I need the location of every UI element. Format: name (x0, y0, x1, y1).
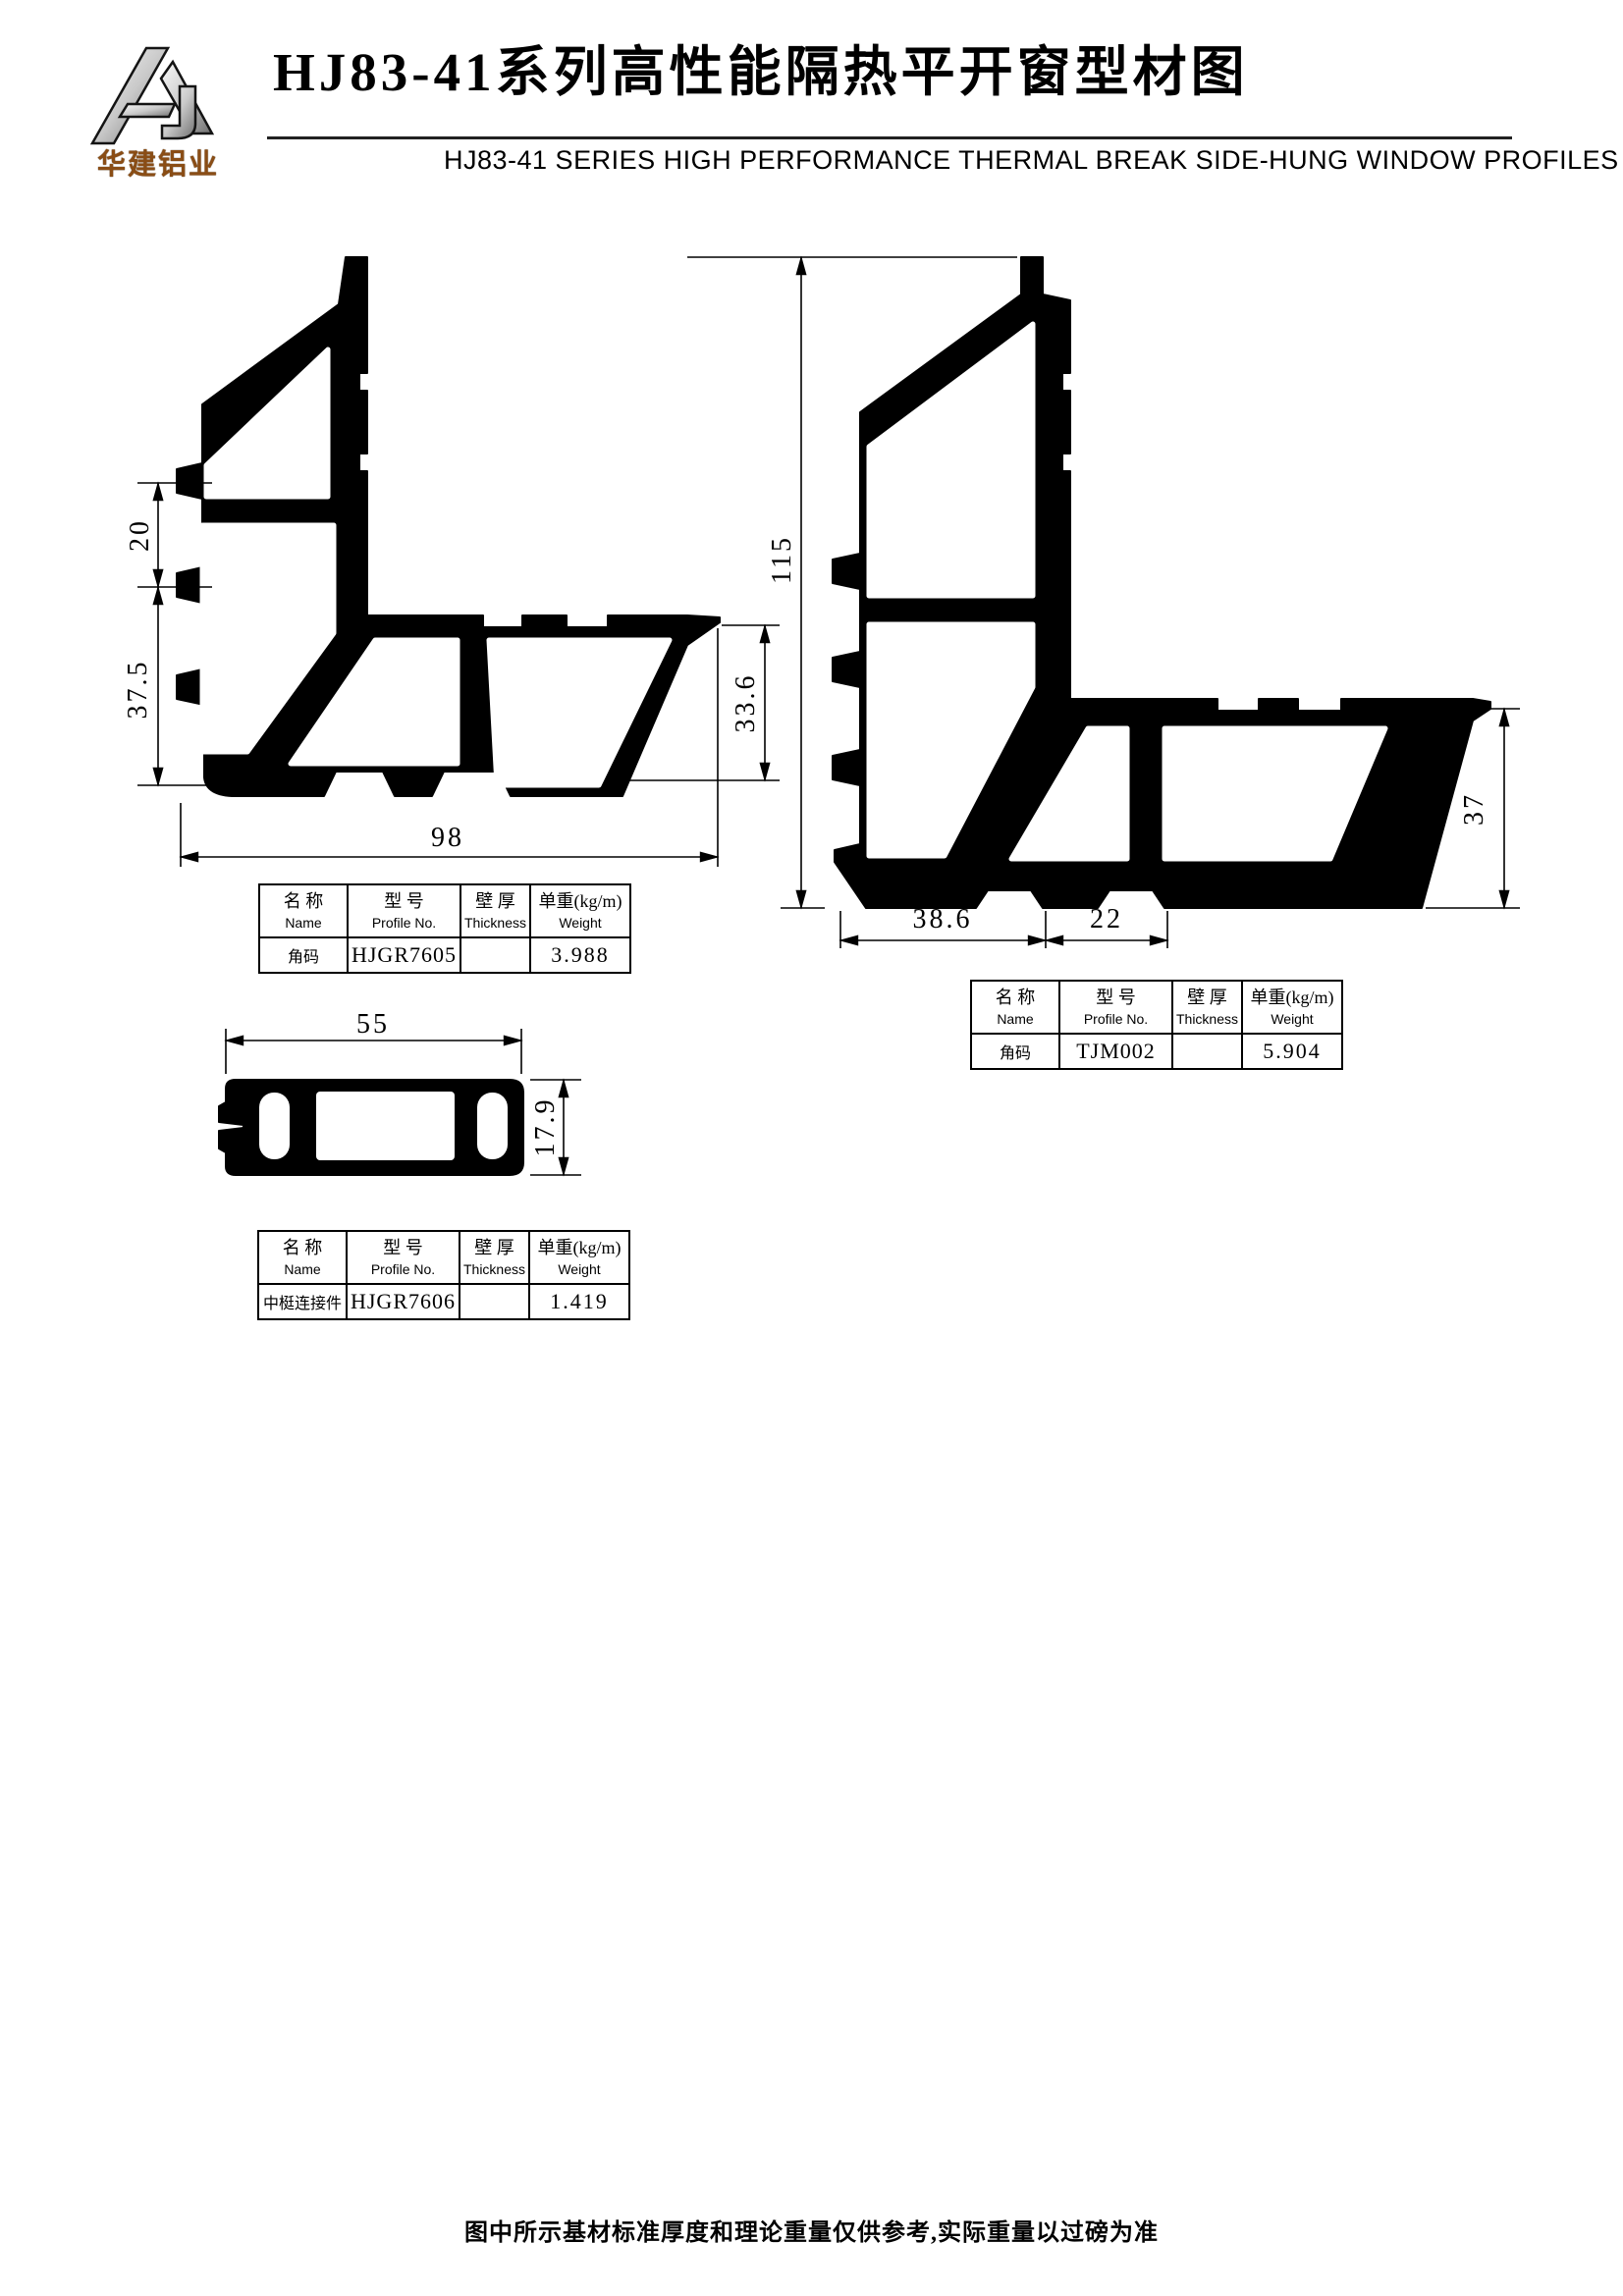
cell-name: 中梃连接件 (258, 1284, 347, 1319)
col-header-profile-no: 型 号 Profile No. (348, 884, 460, 937)
dim-label-38-6: 38.6 (913, 904, 973, 935)
col-header-profile-no: 型 号 Profile No. (1059, 981, 1172, 1034)
col-header-thickness: 壁 厚 Thickness (460, 1231, 529, 1284)
connector-cross-section (219, 1080, 523, 1175)
table-row: 角码 TJM002 5.904 (971, 1034, 1342, 1069)
dim-label-20: 20 (125, 518, 156, 552)
dim-label-37: 37 (1459, 792, 1490, 826)
cell-profile-no: TJM002 (1059, 1034, 1172, 1069)
cell-weight: 1.419 (529, 1284, 629, 1319)
cell-weight: 3.988 (530, 937, 630, 973)
dim-label-17-9: 17.9 (530, 1097, 562, 1157)
table-row: 角码 HJGR7605 3.988 (259, 937, 630, 973)
spec-table-tjm002: 名 称 Name 型 号 Profile No. 壁 厚 Thickness 单… (970, 980, 1343, 1070)
dim-label-33-6: 33.6 (730, 673, 762, 733)
profiles-drawing-canvas (0, 0, 1623, 2296)
col-header-name: 名 称 Name (258, 1231, 347, 1284)
col-header-name: 名 称 Name (971, 981, 1059, 1034)
col-header-thickness: 壁 厚 Thickness (1172, 981, 1242, 1034)
cell-name: 角码 (259, 937, 348, 973)
cell-thickness (460, 937, 530, 973)
spec-table-hjgr7606: 名 称 Name 型 号 Profile No. 壁 厚 Thickness 单… (257, 1230, 630, 1320)
cell-weight: 5.904 (1242, 1034, 1342, 1069)
cell-profile-no: HJGR7605 (348, 937, 460, 973)
col-header-name: 名 称 Name (259, 884, 348, 937)
table-header-row: 名 称 Name 型 号 Profile No. 壁 厚 Thickness 单… (259, 884, 630, 937)
table-row: 中梃连接件 HJGR7606 1.419 (258, 1284, 629, 1319)
cell-profile-no: HJGR7606 (347, 1284, 460, 1319)
drawing-sheet: 华建铝业 HJ83-41系列高性能隔热平开窗型材图 HJ83-41 SERIES… (0, 0, 1623, 2296)
profile2-cross-section (833, 257, 1490, 908)
col-header-weight: 单重(kg/m) Weight (529, 1231, 629, 1284)
dim-label-55: 55 (356, 1009, 390, 1041)
table-header-row: 名 称 Name 型 号 Profile No. 壁 厚 Thickness 单… (971, 981, 1342, 1034)
cell-thickness (1172, 1034, 1242, 1069)
profile1-cross-section (177, 257, 720, 796)
dim-label-37-5: 37.5 (123, 660, 154, 720)
col-header-weight: 单重(kg/m) Weight (1242, 981, 1342, 1034)
cell-thickness (460, 1284, 529, 1319)
dim-label-115: 115 (767, 535, 798, 584)
col-header-thickness: 壁 厚 Thickness (460, 884, 530, 937)
cell-name: 角码 (971, 1034, 1059, 1069)
col-header-profile-no: 型 号 Profile No. (347, 1231, 460, 1284)
dim-label-98: 98 (431, 823, 464, 854)
table-header-row: 名 称 Name 型 号 Profile No. 壁 厚 Thickness 单… (258, 1231, 629, 1284)
spec-table-hjgr7605: 名 称 Name 型 号 Profile No. 壁 厚 Thickness 单… (258, 883, 631, 974)
footer-disclaimer: 图中所示基材标准厚度和理论重量仅供参考,实际重量以过磅为准 (0, 2213, 1623, 2247)
dim-label-22: 22 (1090, 904, 1123, 935)
col-header-weight: 单重(kg/m) Weight (530, 884, 630, 937)
